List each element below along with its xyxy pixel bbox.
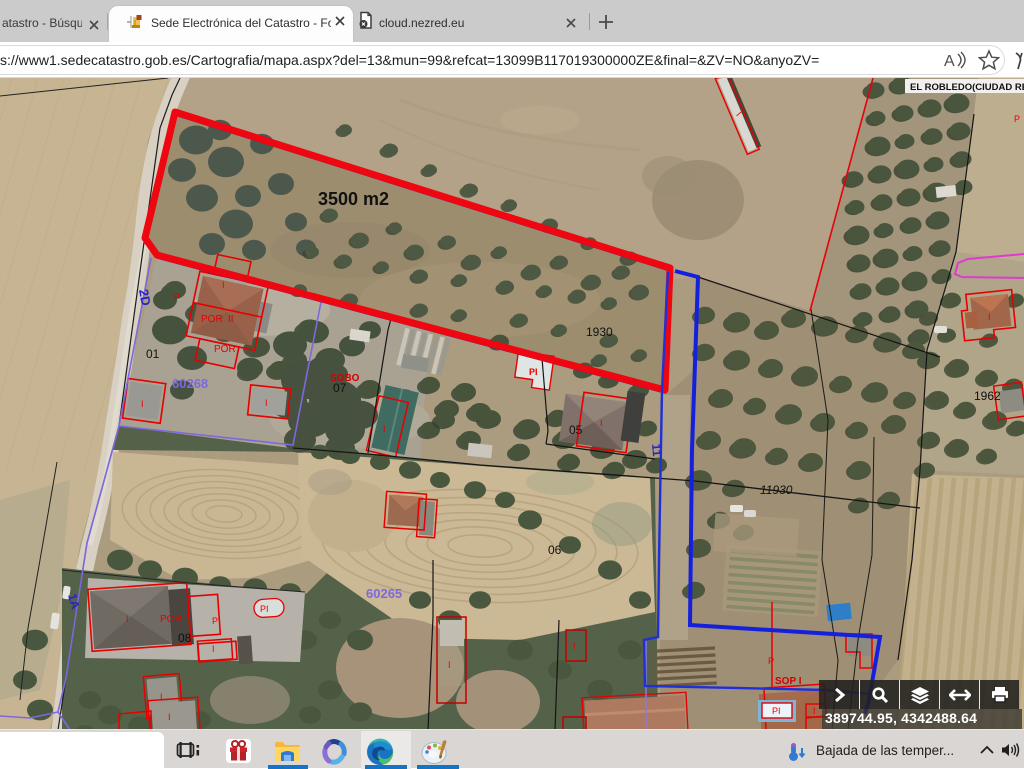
svg-text:I: I [222,280,225,290]
svg-text:05: 05 [569,423,583,437]
svg-text:PI: PI [260,604,269,614]
svg-text:P: P [1014,114,1020,124]
svg-text:II: II [228,314,234,325]
svg-text:I: I [383,424,386,434]
svg-text:A: A [944,53,955,70]
svg-text:06: 06 [548,543,562,557]
svg-text:I: I [265,398,268,408]
svg-text:PI: PI [772,706,781,716]
svg-text:POR: POR [160,614,182,625]
svg-text:I: I [160,692,163,702]
svg-text:PI: PI [529,367,538,377]
svg-text:P: P [212,616,218,626]
svg-text:3500 m2: 3500 m2 [318,189,389,209]
svg-text:08: 08 [178,631,192,645]
svg-text:I: I [448,660,451,670]
svg-text:I: I [141,399,144,409]
svg-text:POR: POR [214,344,236,355]
svg-text:1962: 1962 [974,389,1001,403]
svg-text:1930: 1930 [586,325,613,339]
svg-text:I: I [573,641,576,651]
svg-text:I: I [600,418,603,428]
svg-text:2D: 2D [136,288,154,307]
svg-text:EL ROBLEDO(CIUDAD REAL: EL ROBLEDO(CIUDAD REAL [910,82,1024,93]
svg-text:I: I [168,712,171,722]
svg-text:P: P [768,656,774,666]
svg-text:P: P [174,292,180,302]
svg-text:POR: POR [201,314,223,325]
svg-text:60268: 60268 [172,376,208,391]
svg-text:I: I [988,312,991,322]
svg-text:I: I [126,614,129,624]
svg-text:11: 11 [649,443,664,457]
svg-text:SOP I: SOP I [775,676,802,687]
svg-text:07: 07 [333,381,347,395]
svg-text:I: I [212,644,215,654]
svg-text:60265: 60265 [366,586,402,601]
svg-text:I: I [813,706,816,716]
svg-text:11930: 11930 [760,483,793,497]
svg-text:01: 01 [146,347,160,361]
